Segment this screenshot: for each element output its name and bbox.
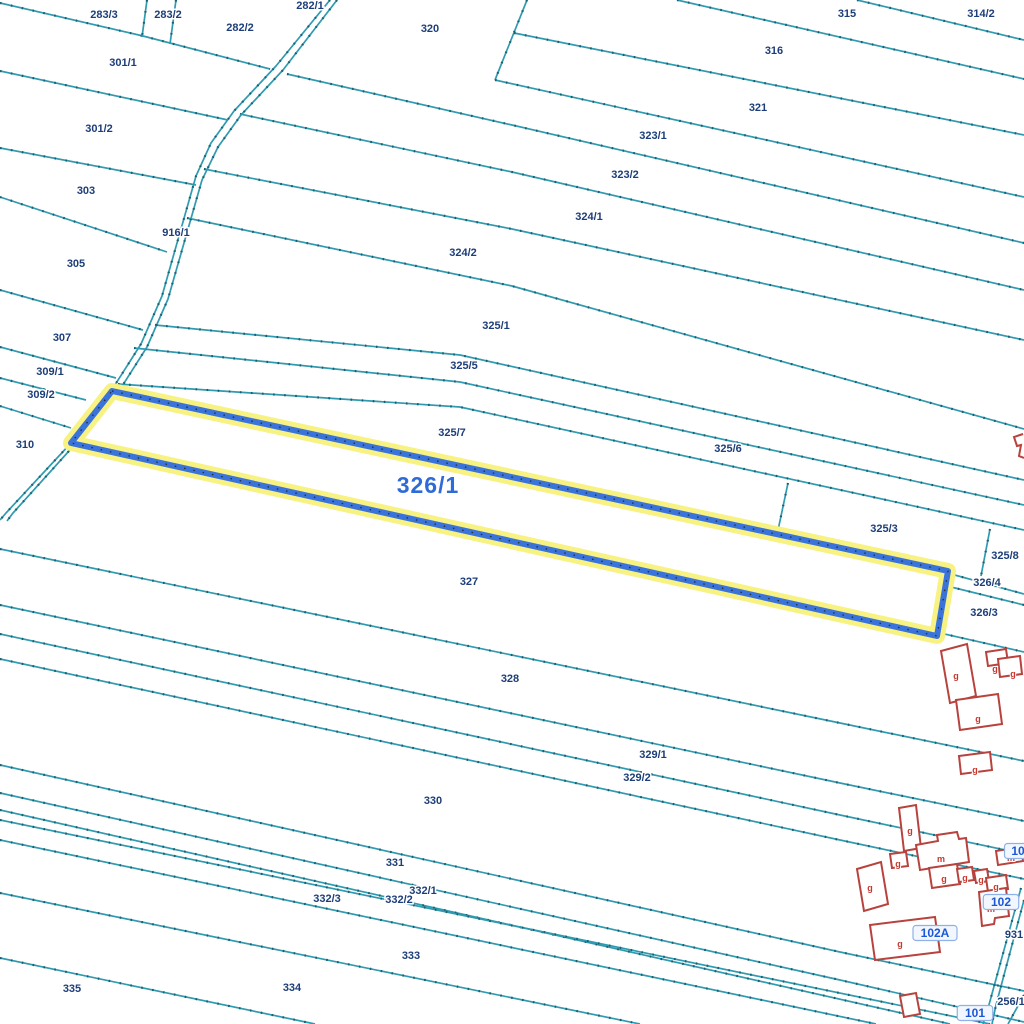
- road-edge-ticks-0: [0, 0, 330, 520]
- cadastral-map-canvas[interactable]: 326/1 gggggggmggggmggm 283/3283/2282/128…: [0, 0, 1024, 1024]
- parcel-label-256-1: 256/1: [997, 996, 1024, 1008]
- building-letter-g-0: g: [953, 671, 959, 681]
- building-letter-g-14: g: [897, 939, 903, 949]
- building-outline-7: [916, 832, 969, 870]
- parcel-label-326-4: 326/4: [973, 577, 1001, 589]
- parcel-label-329-1: 329/1: [639, 749, 667, 761]
- boundary-line-34: [0, 820, 990, 1024]
- building-letter-g-3: g: [975, 714, 981, 724]
- highlight-halo: [71, 391, 948, 636]
- boundary-line-29: [0, 634, 1024, 854]
- parcel-label-332-1: 332/1: [409, 885, 437, 897]
- boundary-line-3: [0, 71, 228, 120]
- parcel-label-307: 307: [53, 332, 71, 344]
- parcel-label-301-1: 301/1: [109, 57, 137, 69]
- parcel-label-325-1: 325/1: [482, 320, 510, 332]
- parcel-label-323-1: 323/1: [639, 130, 667, 142]
- boundary-line-11: [857, 0, 1024, 40]
- parcel-label-332-3: 332/3: [313, 893, 341, 905]
- parcel-label-916-1: 916/1: [162, 227, 190, 239]
- boundary-line-4: [0, 148, 196, 185]
- parcel-label-335: 335: [63, 983, 81, 995]
- parcel-label-301-2: 301/2: [85, 123, 113, 135]
- parcel-label-333: 333: [402, 950, 420, 962]
- parcel-label-303: 303: [77, 185, 95, 197]
- parcel-number-labels: 283/3283/2282/1282/2320315314/2316301/13…: [16, 0, 1024, 1008]
- boundary-line-33: [0, 810, 950, 1024]
- address-badge-101: 101: [965, 1006, 985, 1020]
- boundary-line-23: [981, 529, 990, 576]
- parcel-label-315: 315: [838, 8, 856, 20]
- parcel-label-309-1: 309/1: [36, 366, 64, 378]
- parcel-label-323-2: 323/2: [611, 169, 639, 181]
- parcel-label-325-3: 325/3: [870, 523, 898, 535]
- building-letter-m-7: m: [937, 854, 945, 864]
- parcel-label-314-2: 314/2: [967, 8, 995, 20]
- building-letter-g-6: g: [895, 859, 901, 869]
- parcel-label-325-5: 325/5: [450, 360, 478, 372]
- building-letter-g-2: g: [1010, 669, 1016, 679]
- parcel-label-328: 328: [501, 673, 519, 685]
- highlighted-parcel-number: 326/1: [397, 472, 460, 498]
- address-badge-102A: 102A: [921, 926, 950, 940]
- parcel-label-329-2: 329/2: [623, 772, 651, 784]
- parcel-label-282-2: 282/2: [226, 22, 254, 34]
- address-badge-102: 102: [991, 895, 1011, 909]
- parcel-label-324-2: 324/2: [449, 247, 477, 259]
- address-badge-10: 10: [1011, 844, 1024, 858]
- boundary-line-ticks-28: [0, 605, 1024, 821]
- building-letter-g-11: g: [993, 882, 999, 892]
- highlight-survey-dots: [71, 391, 948, 636]
- boundary-line-12: [495, 0, 527, 80]
- building-letter-g-5: g: [907, 826, 913, 836]
- boundary-line-16: [240, 114, 1024, 290]
- highlighted-parcel-326-1[interactable]: 326/1: [71, 391, 948, 636]
- parcel-label-331: 331: [386, 857, 404, 869]
- parcel-label-283-3: 283/3: [90, 9, 118, 21]
- parcel-label-316: 316: [765, 45, 783, 57]
- boundary-line-ticks-27: [0, 549, 1024, 761]
- building-letter-g-8: g: [941, 874, 947, 884]
- parcel-label-310: 310: [16, 439, 34, 451]
- parcel-label-320: 320: [421, 23, 439, 35]
- building-outline-16: [900, 993, 920, 1017]
- parcel-label-324-1: 324/1: [575, 211, 603, 223]
- parcel-label-334: 334: [283, 982, 302, 994]
- cadastral-map-viewport[interactable]: 326/1 gggggggmggggmggm 283/3283/2282/128…: [0, 0, 1024, 1024]
- parcel-label-305: 305: [67, 258, 85, 270]
- parcel-label-332-2: 332/2: [385, 894, 413, 906]
- parcel-label-325-7: 325/7: [438, 427, 466, 439]
- boundary-line-ticks-19: [155, 325, 1024, 480]
- parcel-label-326-3: 326/3: [970, 607, 998, 619]
- building-letter-g-1: g: [992, 664, 998, 674]
- road-edge-0: [0, 0, 330, 520]
- boundary-line-30: [0, 659, 1024, 879]
- highlight-outline[interactable]: [71, 391, 948, 636]
- boundary-line-1: [142, 0, 147, 37]
- building-outline-3: [956, 694, 1002, 730]
- building-letter-g-4: g: [972, 765, 978, 775]
- parcel-label-325-8: 325/8: [991, 550, 1019, 562]
- parcel-label-325-6: 325/6: [714, 443, 742, 455]
- parcel-label-283-2: 283/2: [154, 9, 182, 21]
- parcel-label-330: 330: [424, 795, 442, 807]
- building-partial-outline-0: [1014, 434, 1024, 458]
- building-letter-g-9: g: [962, 873, 968, 883]
- boundary-line-19: [155, 325, 1024, 480]
- parcel-label-931: 931: [1005, 929, 1023, 941]
- parcel-label-321: 321: [749, 102, 767, 114]
- boundary-line-37: [0, 958, 315, 1024]
- parcel-label-327: 327: [460, 576, 478, 588]
- road-916-1: [0, 0, 337, 521]
- parcel-label-282-1: 282/1: [296, 0, 324, 12]
- boundary-line-5: [0, 197, 167, 252]
- building-letter-g-10: g: [978, 875, 984, 885]
- parcel-label-309-2: 309/2: [27, 389, 55, 401]
- building-letter-g-13: g: [867, 883, 873, 893]
